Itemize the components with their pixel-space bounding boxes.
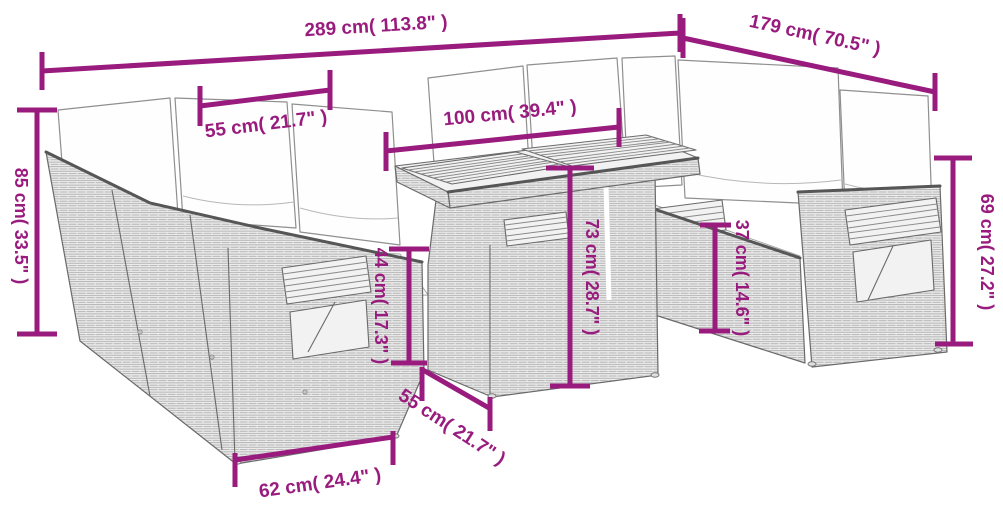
dim-label-table-height: 73 cm( 28.7" ) bbox=[582, 219, 602, 336]
table-base-gap bbox=[606, 185, 609, 300]
dim-label-module-width: 62 cm( 24.4" ) bbox=[258, 465, 383, 503]
dim-label-front-seat-height: 44 cm( 17.3" ) bbox=[371, 248, 391, 365]
dim-label-overall-depth: 179 cm( 70.5" ) bbox=[747, 11, 882, 60]
dimension-diagram: 289 cm( 113.8" ) 179 cm( 70.5" ) 85 cm( … bbox=[0, 0, 1003, 512]
dim-label-overall-width: 289 cm( 113.8" ) bbox=[304, 12, 448, 41]
dim-label-back-height: 85 cm( 33.5" ) bbox=[11, 168, 31, 285]
diagram-canvas: 289 cm( 113.8" ) 179 cm( 70.5" ) 85 cm( … bbox=[0, 0, 1003, 512]
dimension-back-height: 85 cm( 33.5" ) bbox=[11, 110, 57, 334]
dim-label-seat-height: 37 cm( 14.6" ) bbox=[732, 220, 752, 337]
dim-label-arm-height: 69 cm( 27.2" ) bbox=[977, 194, 997, 311]
table bbox=[395, 135, 700, 397]
